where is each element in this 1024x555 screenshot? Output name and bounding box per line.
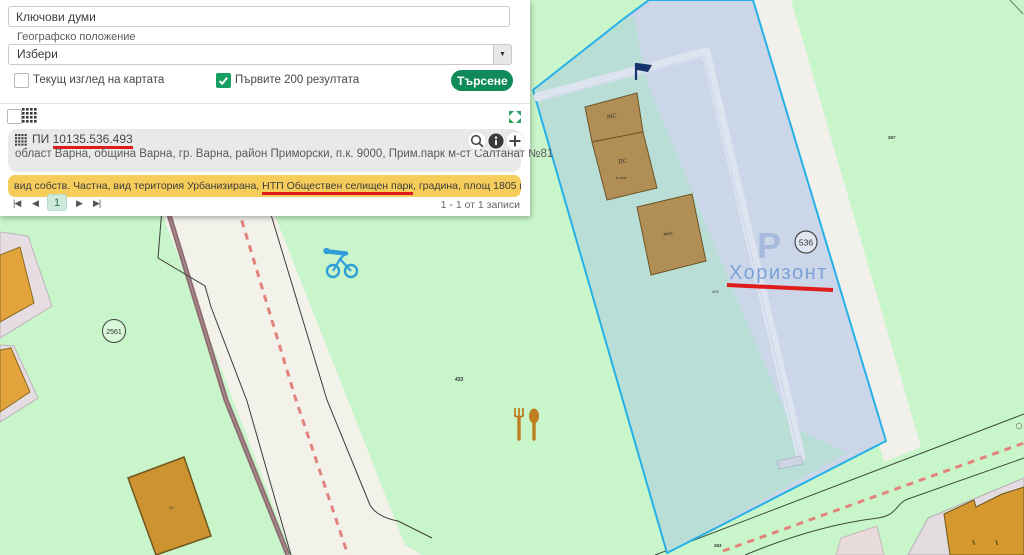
plus-icon: [506, 132, 524, 150]
chevron-down-icon[interactable]: ▼: [493, 45, 511, 64]
result-row[interactable]: ПИ 10135.536.493 област Варна, община Ва…: [8, 129, 521, 172]
attributes-text-marked: НТП Обществен селищен парк: [262, 180, 413, 195]
result-id-prefix: ПИ: [32, 132, 53, 146]
attributes-text-before: вид собств. Частна, вид територия Урбани…: [14, 180, 262, 192]
grid-layer-icon-small: [15, 134, 27, 146]
grid-layer-icon: [22, 108, 37, 123]
pagination-prev-button[interactable]: ◀: [32, 198, 38, 209]
parcel-number-433: 433: [455, 377, 464, 383]
zoom-to-result-button[interactable]: [468, 132, 486, 150]
add-to-selection-button[interactable]: [506, 132, 524, 150]
first-200-checkbox[interactable]: [216, 73, 231, 88]
parking-letter: P: [757, 225, 781, 266]
parcel-number-263: 263: [714, 543, 722, 548]
app-window: 263 МС ПС п.зав маг P Хоризонт: [0, 0, 1024, 555]
search-button[interactable]: Търсене: [451, 70, 513, 91]
info-icon: [487, 132, 505, 150]
current-view-label: Текущ изглед на картата: [33, 74, 164, 86]
horizon-label: Хоризонт: [729, 262, 828, 284]
pagination-current-page[interactable]: 1: [47, 194, 67, 211]
panel-divider: [0, 103, 530, 104]
geo-location-select[interactable]: Избери ▼: [8, 44, 512, 65]
pagination-summary: 1 - 1 от 1 записи: [430, 199, 520, 211]
building-number-31: 31: [169, 505, 174, 510]
parcel-number-2561: 2561: [106, 329, 122, 336]
attributes-text-after: , градина, площ 1805 кв. м, квартал 0: [413, 180, 521, 192]
building-label-ps2: п.зав: [616, 175, 627, 180]
result-attributes-row: вид собств. Частна, вид територия Урбани…: [8, 175, 521, 197]
parcel-number-267: 267: [888, 135, 896, 140]
keywords-input[interactable]: [8, 6, 510, 27]
expand-map-icon[interactable]: [508, 110, 522, 124]
search-icon: [468, 132, 486, 150]
pagination-next-button[interactable]: ▶: [76, 198, 82, 209]
select-all-checkbox[interactable]: [7, 109, 22, 124]
result-id-line: ПИ 10135.536.493: [32, 132, 133, 146]
current-view-checkbox[interactable]: [14, 73, 29, 88]
geo-location-label: Географско положение: [17, 31, 136, 43]
info-button[interactable]: [487, 132, 505, 150]
checkmark-icon: [217, 74, 230, 87]
result-id-number[interactable]: 10135.536.493: [53, 132, 133, 149]
parcel-number-493: 493: [712, 289, 719, 294]
parcel-number-536: 536: [799, 238, 813, 248]
pagination-last-button[interactable]: ▶|: [93, 198, 100, 209]
search-results-panel: Географско положение Избери ▼ Текущ изгл…: [0, 0, 530, 216]
pagination-first-button[interactable]: |◀: [13, 198, 20, 209]
first-200-label: Първите 200 резултата: [235, 74, 359, 86]
geo-select-value: Избери: [17, 47, 58, 61]
